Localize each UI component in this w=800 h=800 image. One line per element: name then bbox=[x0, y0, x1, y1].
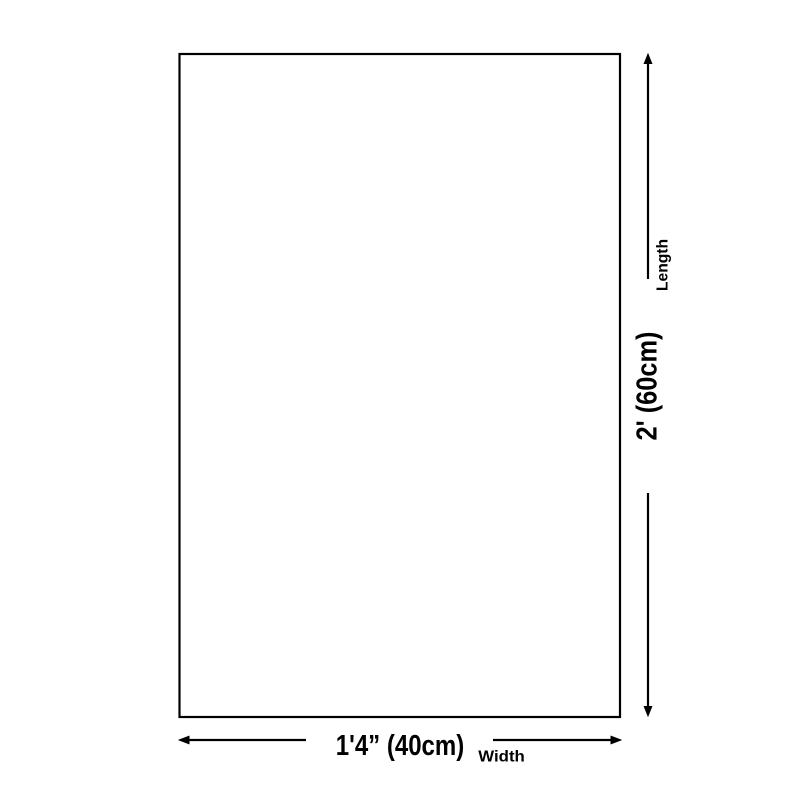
svg-text:Width: Width bbox=[478, 749, 525, 766]
svg-text:Length: Length bbox=[655, 239, 672, 291]
svg-text:2' (60cm): 2' (60cm) bbox=[632, 332, 664, 441]
svg-text:1'4” (40cm): 1'4” (40cm) bbox=[336, 730, 465, 762]
